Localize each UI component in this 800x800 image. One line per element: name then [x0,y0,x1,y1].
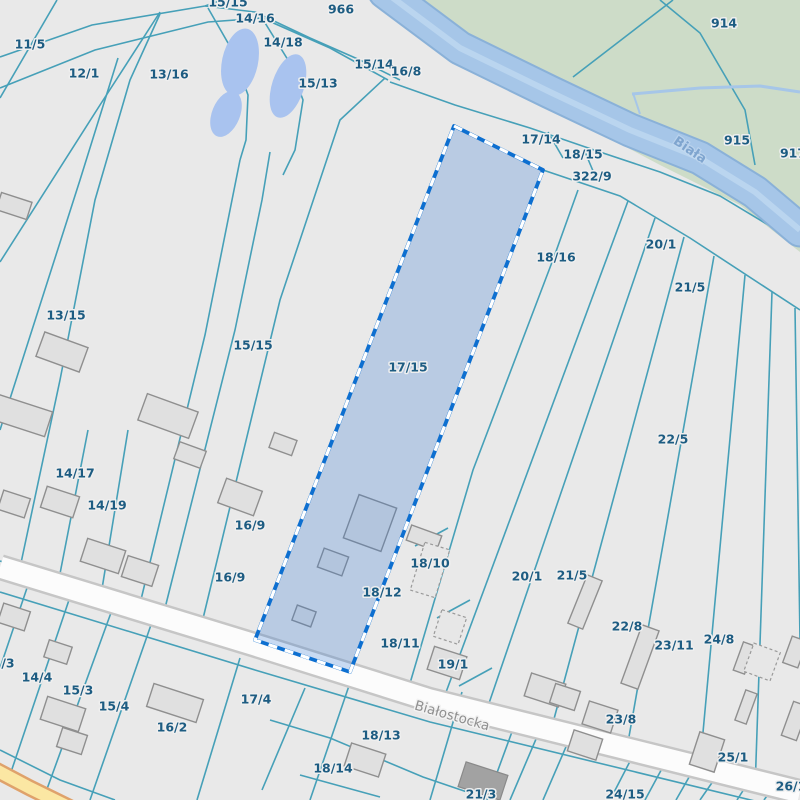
parcel-label: 15/15 [233,338,272,353]
map-viewport: 15/1596614/1611/514/1812/113/1615/1416/8… [0,0,800,800]
parcel-label: 15/4 [99,699,130,714]
parcel-label: 13/16 [149,67,189,82]
parcel-label: 18/12 [362,585,401,600]
parcel-label: 917 [780,146,800,161]
parcel-label: 322/9 [572,169,611,184]
parcel-label: 16/8 [391,64,422,79]
parcel-label: 14/17 [55,466,94,481]
parcel-label: 15/14 [354,57,394,72]
parcel-label: 17/14 [521,132,561,147]
map-canvas[interactable]: 15/1596614/1611/514/1812/113/1615/1416/8… [0,0,800,800]
parcel-label: 16/9 [215,570,246,585]
parcel-label: 21/3 [466,787,497,800]
parcel-label: 14/4 [22,670,53,685]
parcel-label: 25/1 [718,750,749,765]
parcel-label: 22/5 [658,432,689,447]
parcel-label: 21/5 [675,280,706,295]
parcel-label: 22/8 [612,619,643,634]
parcel-label: 20/1 [512,569,543,584]
parcel-label: 23/8 [606,712,637,727]
parcel-label: 19/1 [438,657,469,672]
parcel-label: 17/15 [388,360,427,375]
parcel-label: 966 [328,2,354,17]
parcel-label: 13/15 [46,308,85,323]
parcel-label: 11/5 [15,37,46,52]
parcel-label: 24/8 [704,632,735,647]
parcel-label: 23/11 [654,638,693,653]
parcel-label: 15/3 [63,683,94,698]
parcel-label: 14/18 [263,35,302,50]
parcel-label: 16/9 [235,518,266,533]
parcel-label: 18/15 [563,147,602,162]
parcel-label: 18/13 [361,728,400,743]
parcel-label: 15/15 [208,0,247,10]
parcel-label: 14/16 [235,11,275,26]
parcel-label: 18/11 [380,636,419,651]
parcel-label: 20/1 [646,237,677,252]
parcel-label: 16/2 [157,720,188,735]
parcel-label: /3 [1,656,14,671]
parcel-label: 18/14 [313,761,353,776]
parcel-label: 26/1 [776,779,800,794]
parcel-label: 12/1 [69,66,100,81]
parcel-label: 21/5 [557,568,588,583]
parcel-label: 915 [724,133,750,148]
parcel-label: 14/19 [87,498,126,513]
parcel-label: 24/15 [605,787,644,800]
parcel-label: 18/16 [536,250,576,265]
parcel-label: 18/10 [410,556,450,571]
parcel-label: 15/13 [298,76,337,91]
parcel-label: 914 [711,16,737,31]
parcel-label: 17/4 [241,692,272,707]
